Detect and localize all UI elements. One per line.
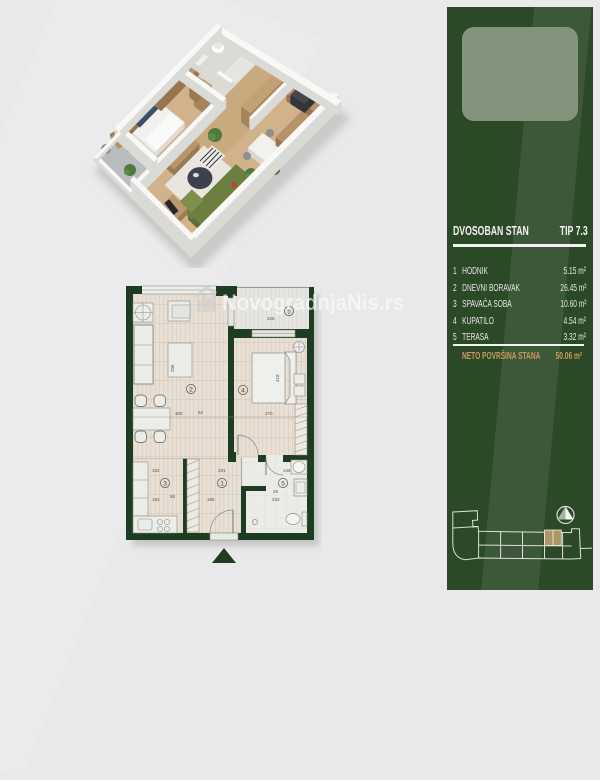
- svg-text:206: 206: [170, 364, 175, 372]
- svg-text:5: 5: [281, 481, 285, 488]
- svg-text:1: 1: [220, 481, 224, 488]
- svg-text:4: 4: [241, 388, 245, 395]
- svg-text:300: 300: [175, 411, 183, 416]
- svg-text:270: 270: [265, 411, 273, 416]
- svg-text:418: 418: [275, 374, 280, 382]
- svg-text:92: 92: [198, 410, 204, 415]
- svg-text:198: 198: [207, 497, 215, 502]
- svg-text:233: 233: [272, 497, 280, 502]
- svg-text:146: 146: [283, 468, 291, 473]
- svg-text:2: 2: [189, 387, 193, 394]
- svg-text:3: 3: [163, 481, 167, 488]
- svg-text:326: 326: [267, 316, 275, 321]
- svg-text:183: 183: [152, 497, 160, 502]
- svg-text:26: 26: [273, 489, 279, 494]
- svg-text:58: 58: [170, 494, 176, 499]
- svg-text:281: 281: [218, 468, 226, 473]
- svg-text:182: 182: [152, 468, 160, 473]
